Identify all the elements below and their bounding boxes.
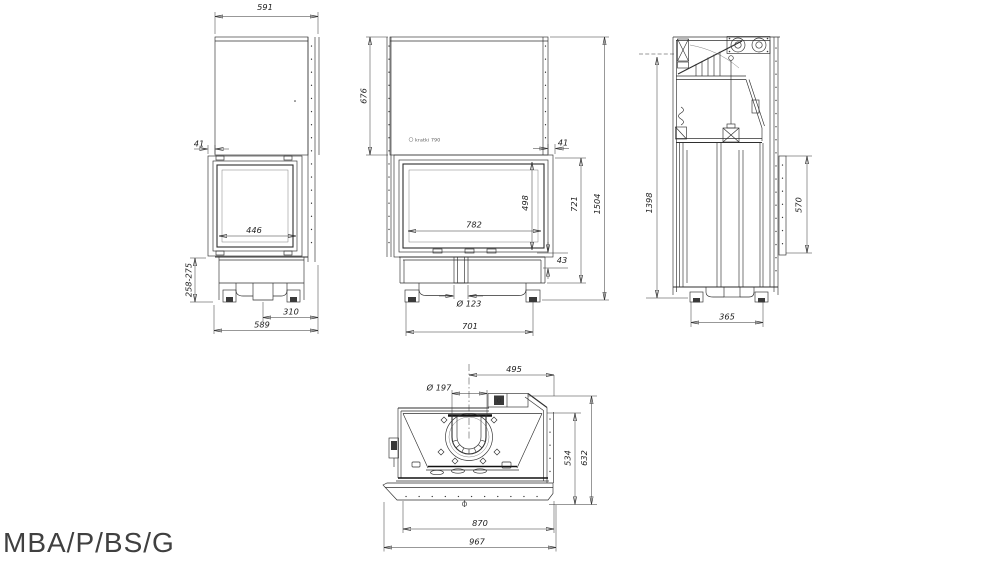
left-side-dimensions: 591 41 446 258-275 310 589 [184,2,319,334]
right-side-section-view: 1398 570 365 [639,37,812,328]
dim-rear-panel-height: 570 [794,197,804,213]
firebox-plates [680,143,764,287]
hood-outline [390,37,548,155]
top-view-dimensions: 495 Ø 197 534 632 870 967 [384,364,597,552]
firebox-interior [403,414,542,475]
fireplace-insert-drawing: 591 41 446 258-275 310 589 [0,0,999,562]
dim-hood-height: 676 [359,88,369,104]
dim-inlet-diameter: Ø 123 [456,299,482,309]
front-skirt [383,483,553,507]
dim-total-height: 1504 [592,194,602,215]
dim-flue-diameter: Ø 197 [426,383,452,393]
damper-lever [488,394,528,408]
brand-logo-text: kratki 790 [415,138,440,144]
technical-drawing-page: 591 41 446 258-275 310 589 [0,0,999,562]
base-plinth [215,257,308,302]
dim-flue-axis-to-front: 495 [506,364,522,374]
fan-icon [752,38,766,52]
dim-plinth-height: 258-275 [184,263,194,297]
side-latch [389,438,399,467]
dim-base-depth: 365 [719,312,735,322]
dim-frame-offset: 41 [194,139,204,149]
left-side-view: 591 41 446 258-275 310 589 [184,2,320,334]
spring-icon [679,107,684,125]
control-box [678,39,689,68]
model-label: MBA/P/BS/G [3,527,175,558]
guillotine-counterweight [723,56,739,142]
hood-outline [215,37,308,155]
dim-total-width: 967 [469,537,485,547]
dim-base-depth: 589 [254,320,270,330]
base-plinth [399,257,545,302]
dim-body-width: 870 [472,518,488,528]
dim-top-width: 591 [257,2,273,12]
pulley-icon [729,56,734,61]
dim-firebox-height: 721 [569,196,579,212]
rear-heat-shield [779,156,786,255]
front-view: kratki 790 [359,37,610,336]
air-inlet-pipe [454,257,468,283]
dim-base-width: 701 [462,321,478,331]
dim-flue-axis-to-back: 310 [283,307,299,317]
dim-glass-width: 446 [246,225,262,235]
base-plinth [673,287,778,303]
dim-frame-offset: 41 [558,138,568,148]
side-glass-door [208,156,302,256]
dim-frame-lip: 43 [557,255,567,265]
dim-body-depth: 534 [563,450,573,466]
brand-logo-icon [409,138,413,142]
dim-body-height: 1398 [644,193,654,214]
dim-glass-width: 782 [466,220,482,230]
front-dimensions: 676 41 782 498 721 1504 43 [359,37,610,336]
dim-total-depth: 632 [579,450,589,466]
dim-glass-height: 498 [520,195,530,211]
top-view: 495 Ø 197 534 632 870 967 [383,364,597,552]
